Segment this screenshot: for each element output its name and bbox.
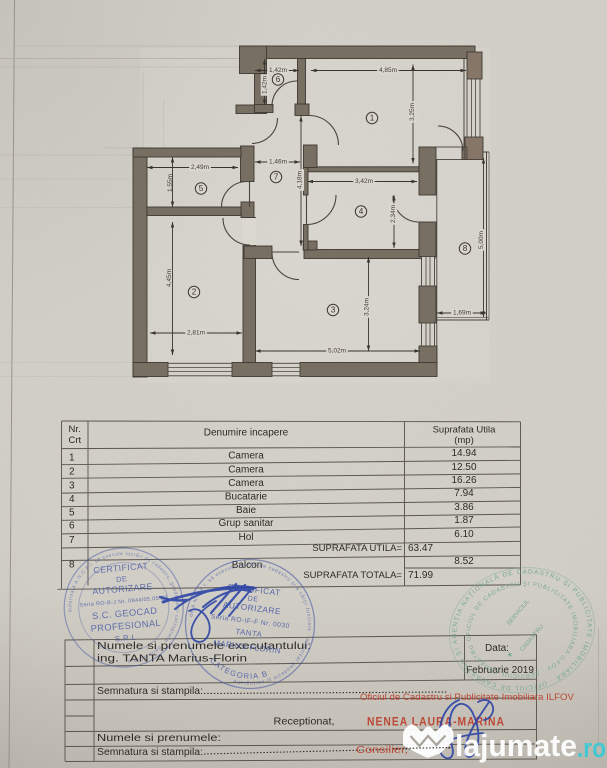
svg-text:2: 2 <box>69 467 75 478</box>
svg-text:7.94: 7.94 <box>454 488 474 499</box>
svg-text:4: 4 <box>359 207 364 216</box>
svg-text:5,02m: 5,02m <box>328 348 346 355</box>
svg-text:63.47: 63.47 <box>408 543 433 554</box>
svg-text:Suprafata Utila: Suprafata Utila <box>433 425 497 436</box>
svg-text:DE: DE <box>116 574 128 584</box>
svg-text:4: 4 <box>69 494 75 505</box>
svg-text:1: 1 <box>370 114 375 123</box>
svg-text:2: 2 <box>192 288 197 297</box>
svg-text:Crt: Crt <box>69 435 82 446</box>
svg-text:71.99: 71.99 <box>408 570 433 581</box>
svg-text:8.52: 8.52 <box>454 556 474 567</box>
svg-text:Denumire incapere: Denumire incapere <box>204 428 289 439</box>
svg-text:3.86: 3.86 <box>454 502 474 513</box>
svg-text:1,69m: 1,69m <box>453 310 471 317</box>
svg-text:4,45m: 4,45m <box>166 269 173 287</box>
svg-text:6: 6 <box>276 75 281 84</box>
svg-text:16.26: 16.26 <box>451 475 476 486</box>
svg-text:14.94: 14.94 <box>451 448 476 459</box>
svg-text:Numele si prenumele:: Numele si prenumele: <box>97 732 221 744</box>
svg-text:1,42m: 1,42m <box>269 67 287 74</box>
svg-text:12.50: 12.50 <box>451 462 476 473</box>
svg-text:6: 6 <box>69 521 75 532</box>
svg-text:7: 7 <box>69 535 75 546</box>
svg-text:SUPRAFATA TOTALA=: SUPRAFATA TOTALA= <box>303 570 402 581</box>
svg-text:Grup sanitar: Grup sanitar <box>218 518 274 529</box>
svg-text:ing. TANTA Marius-Florin: ing. TANTA Marius-Florin <box>97 652 247 664</box>
svg-text:1,42m: 1,42m <box>262 76 269 94</box>
svg-text:1.87: 1.87 <box>454 515 474 526</box>
svg-text:Oficiul de Cadastru si Publici: Oficiul de Cadastru si Publicitate Imobi… <box>360 692 574 702</box>
svg-text:Nr.: Nr. <box>69 424 81 435</box>
svg-text:.ro: .ro <box>577 733 606 763</box>
svg-text:Camera: Camera <box>228 451 264 462</box>
svg-text:5: 5 <box>199 184 204 193</box>
svg-text:1: 1 <box>69 453 75 464</box>
svg-text:2,34m: 2,34m <box>390 205 397 223</box>
svg-text:6.10: 6.10 <box>454 529 474 540</box>
svg-text:Bucatarie: Bucatarie <box>225 491 268 502</box>
svg-text:Semnatura si stampila:: Semnatura si stampila: <box>97 685 203 697</box>
svg-text:3,25m: 3,25m <box>409 103 416 121</box>
svg-text:3: 3 <box>331 306 336 315</box>
svg-text:3,42m: 3,42m <box>355 178 373 185</box>
svg-text:4,18m: 4,18m <box>297 171 304 189</box>
svg-text:NENEA LAURA-MARINA: NENEA LAURA-MARINA <box>367 715 505 729</box>
svg-text:Receptionat,: Receptionat, <box>274 715 335 727</box>
svg-text:3: 3 <box>69 480 75 491</box>
svg-text:Consilier,: Consilier, <box>356 745 408 756</box>
svg-text:2,49m: 2,49m <box>191 164 209 171</box>
svg-text:8: 8 <box>463 244 468 253</box>
svg-text:lajumate: lajumate <box>455 728 577 763</box>
svg-text:Hol: Hol <box>238 532 253 543</box>
svg-text:Semnatura si stampila:: Semnatura si stampila: <box>97 746 203 758</box>
svg-text:Baie: Baie <box>236 505 256 516</box>
svg-text:(mp): (mp) <box>454 435 474 446</box>
svg-text:SUPRAFATA UTILA=: SUPRAFATA UTILA= <box>312 543 402 554</box>
svg-text:3,24m: 3,24m <box>364 298 371 316</box>
svg-text:8: 8 <box>69 560 75 571</box>
svg-text:4,85m: 4,85m <box>379 67 397 74</box>
svg-text:5: 5 <box>69 508 75 519</box>
svg-text:Camera: Camera <box>228 465 264 476</box>
svg-text:1,46m: 1,46m <box>269 159 287 166</box>
svg-text:7: 7 <box>274 173 279 182</box>
svg-text:Camera: Camera <box>228 478 264 489</box>
svg-text:2,81m: 2,81m <box>187 330 205 337</box>
svg-text:5,00m: 5,00m <box>478 231 485 249</box>
svg-text:1,55m: 1,55m <box>167 174 174 192</box>
